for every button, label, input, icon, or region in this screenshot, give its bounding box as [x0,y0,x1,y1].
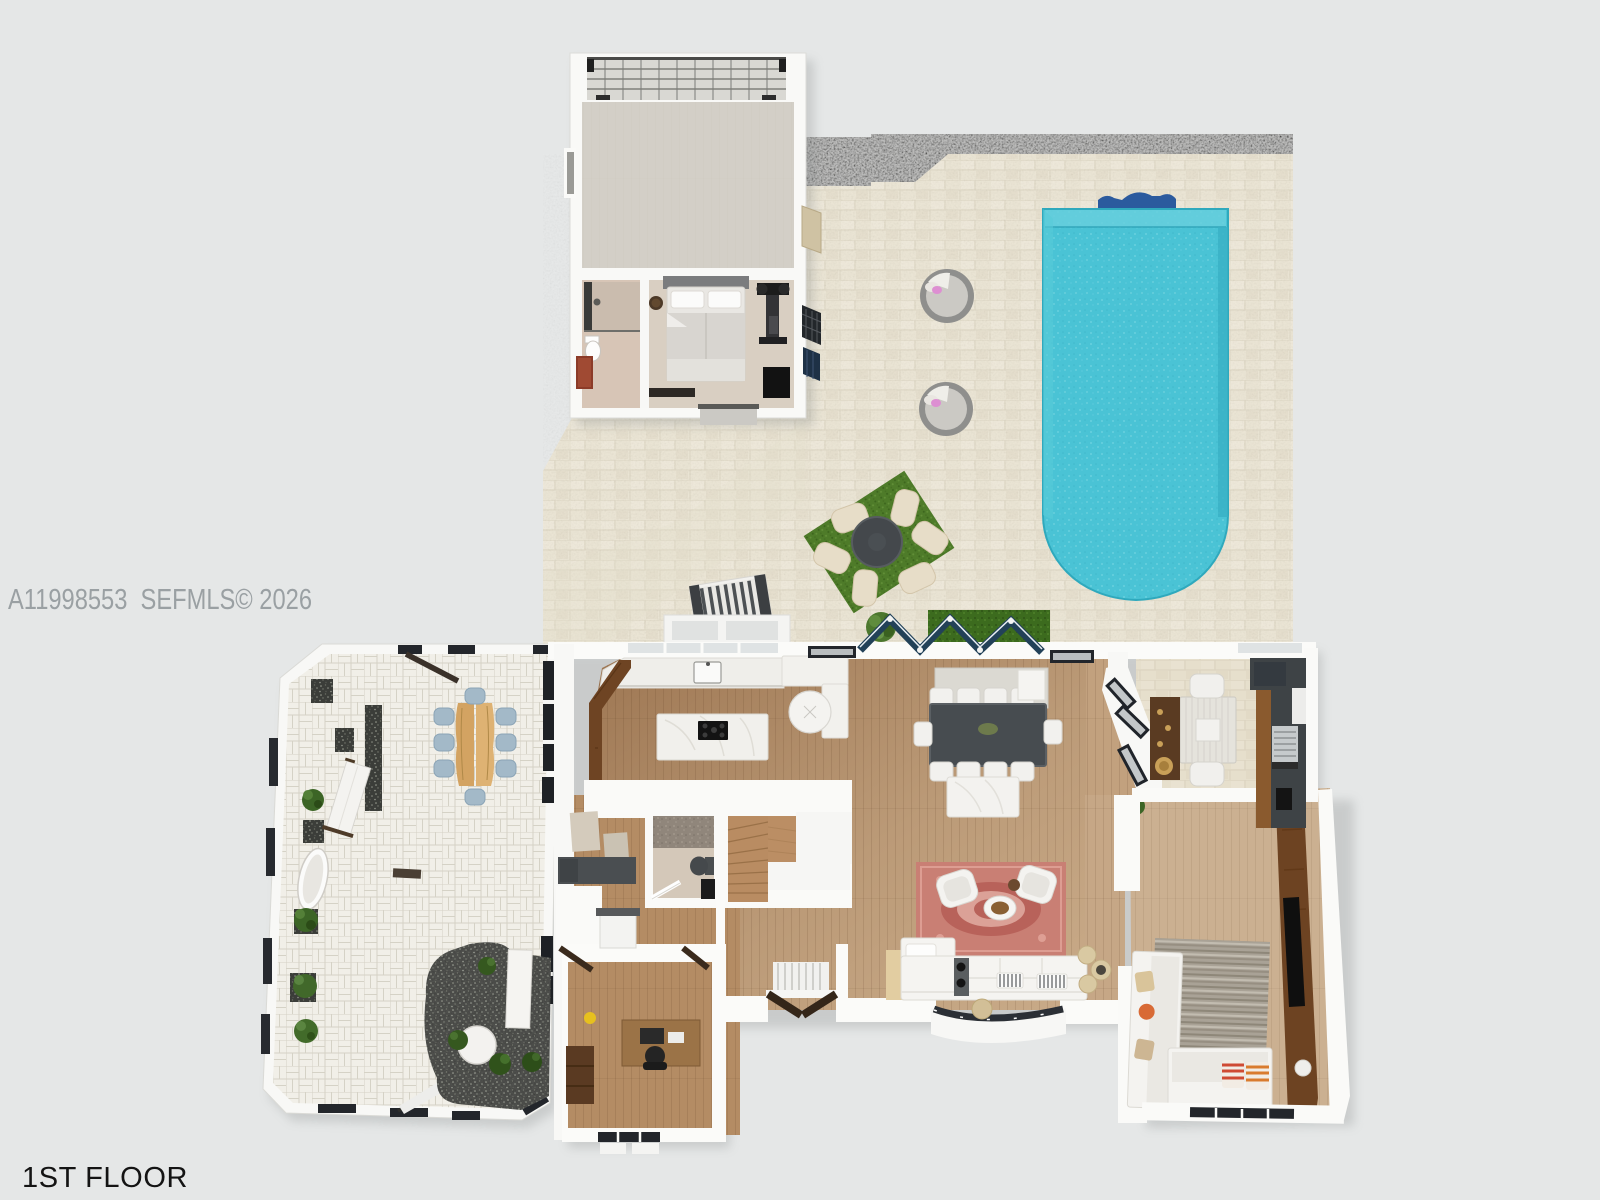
svg-text:1ST FLOOR: 1ST FLOOR [22,1162,188,1194]
svg-text:A11998553 SEFMLS© 2026: A11998553 SEFMLS© 2026 [8,584,312,616]
